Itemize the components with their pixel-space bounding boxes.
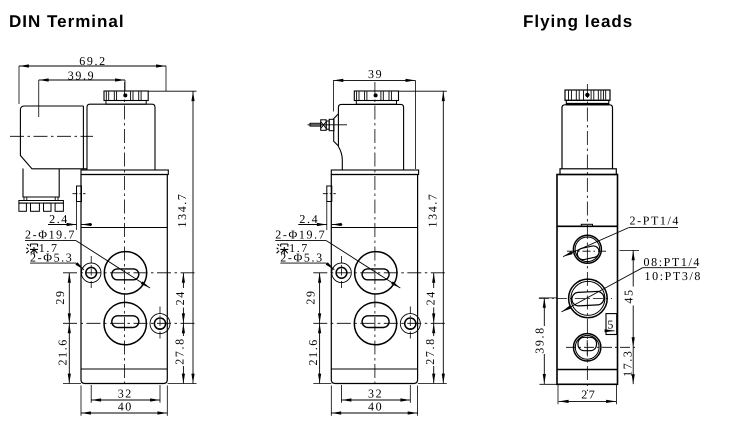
svg-text:27.8: 27.8 [173, 337, 187, 364]
svg-text:DIN Terminal: DIN Terminal [9, 12, 125, 31]
svg-text:40: 40 [118, 399, 133, 413]
svg-text:21.6: 21.6 [56, 338, 70, 365]
svg-text:27: 27 [581, 388, 596, 402]
svg-text:2.4: 2.4 [299, 212, 319, 226]
svg-text:2-Φ5.3: 2-Φ5.3 [30, 251, 73, 265]
svg-text:32: 32 [118, 386, 133, 400]
svg-text:Flying leads: Flying leads [523, 12, 633, 31]
svg-text:32: 32 [368, 386, 383, 400]
svg-text:134.7: 134.7 [425, 193, 439, 228]
svg-text:134.7: 134.7 [175, 193, 189, 228]
svg-text:2-Φ5.3: 2-Φ5.3 [280, 251, 323, 265]
svg-text:45: 45 [622, 288, 636, 303]
svg-text:24: 24 [173, 290, 187, 305]
svg-text:08:PT1/4: 08:PT1/4 [644, 255, 701, 269]
svg-text:27.8: 27.8 [423, 337, 437, 364]
svg-text:21.6: 21.6 [306, 338, 320, 365]
svg-text:2-Φ19.7: 2-Φ19.7 [275, 227, 326, 241]
svg-text:2.4: 2.4 [49, 212, 69, 226]
svg-text:24: 24 [423, 290, 437, 305]
svg-text:17.3: 17.3 [620, 349, 634, 376]
svg-text:10:PT3/8: 10:PT3/8 [645, 269, 702, 283]
svg-text:39: 39 [368, 67, 383, 81]
svg-text:39.8: 39.8 [532, 326, 546, 353]
svg-text:5: 5 [607, 317, 615, 331]
svg-text:29: 29 [303, 289, 317, 304]
svg-text:2-Φ19.7: 2-Φ19.7 [25, 227, 76, 241]
svg-text:29: 29 [53, 289, 67, 304]
svg-text:40: 40 [368, 399, 383, 413]
svg-text:2-PT1/4: 2-PT1/4 [630, 213, 681, 227]
